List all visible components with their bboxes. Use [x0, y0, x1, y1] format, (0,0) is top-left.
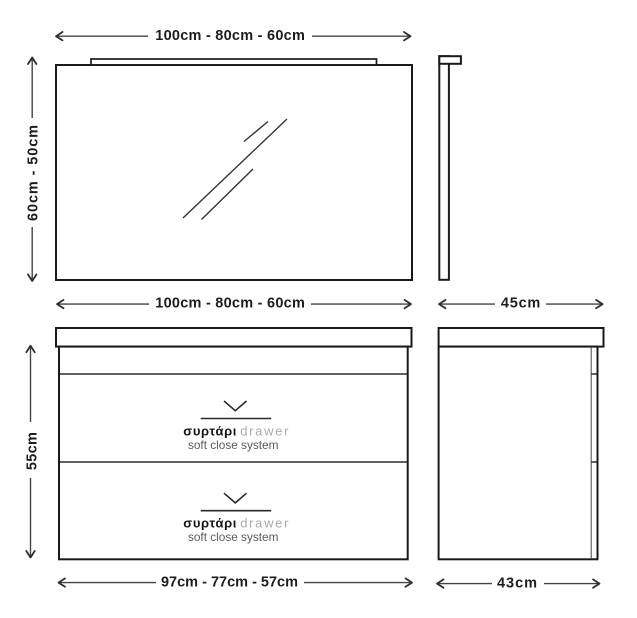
svg-text:43cm: 43cm	[497, 576, 538, 592]
svg-text:45cm: 45cm	[501, 296, 541, 312]
svg-text:soft close system: soft close system	[188, 530, 279, 544]
svg-text:100cm - 80cm - 60cm: 100cm - 80cm - 60cm	[155, 296, 305, 312]
svg-text:97cm - 77cm - 57cm: 97cm - 77cm - 57cm	[161, 575, 298, 591]
svg-text:συρτάριdrawer: συρτάριdrawer	[183, 423, 290, 438]
svg-text:soft close system: soft close system	[188, 438, 279, 452]
svg-text:55cm: 55cm	[24, 432, 40, 470]
svg-text:συρτάριdrawer: συρτάριdrawer	[183, 516, 290, 531]
svg-text:60cm - 50cm: 60cm - 50cm	[25, 124, 41, 221]
svg-text:100cm - 80cm - 60cm: 100cm - 80cm - 60cm	[155, 28, 305, 44]
